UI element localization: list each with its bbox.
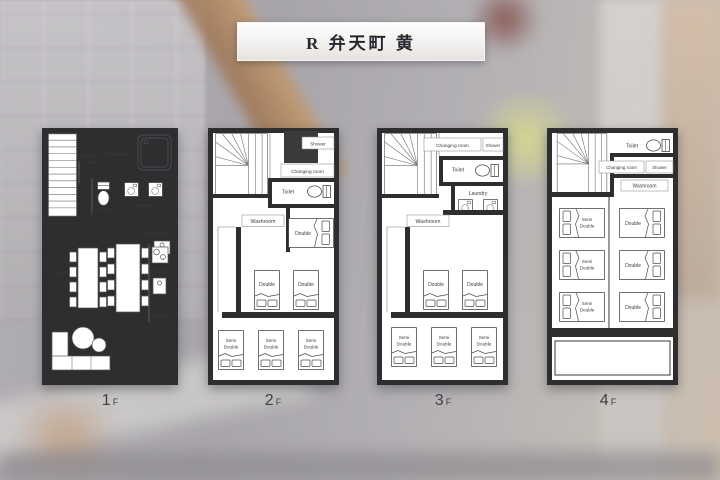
label-bed-double: Double xyxy=(467,282,483,288)
label-laundry: Laundry xyxy=(135,203,155,209)
floorplan-3f: Changing room Shower Toilet Laundry Wash… xyxy=(377,128,508,385)
svg-text:Double: Double xyxy=(437,342,452,347)
listing-photo: R 弁天町 黄 Changing room Bathroom Toilet xyxy=(0,0,720,480)
label-bed-semi: Semi xyxy=(226,338,236,343)
label-bed-semi: Semi xyxy=(582,259,592,264)
toilet-icon xyxy=(98,182,110,205)
floor-caption-4f: 4F xyxy=(578,392,638,410)
svg-text:Double: Double xyxy=(304,345,319,350)
floor-caption-1f: 1F xyxy=(80,392,140,410)
label-kitchen: Kitchen xyxy=(153,269,169,275)
svg-text:Double: Double xyxy=(224,345,239,350)
title-banner: R 弁天町 黄 xyxy=(237,22,485,61)
tv-icon xyxy=(47,254,51,292)
semi-double-bed-icon xyxy=(392,328,417,367)
label-shower: Shower xyxy=(652,165,667,170)
double-bed-icon xyxy=(294,271,319,310)
svg-text:room: room xyxy=(85,160,96,166)
round-table-icon xyxy=(92,338,106,352)
semi-double-bed-icon xyxy=(219,331,244,370)
page-title: R 弁天町 黄 xyxy=(306,29,416,54)
semi-double-bed-icon xyxy=(299,331,324,370)
floorplan-1f: Changing room Bathroom Toilet Laundry Wa… xyxy=(42,128,178,385)
round-table-icon xyxy=(72,327,94,349)
label-washroom: Washroom xyxy=(251,219,276,225)
label-toilet: Toilet xyxy=(452,168,465,174)
semi-double-bed-icon xyxy=(432,328,457,367)
label-bed-semi: Semi xyxy=(582,301,592,306)
semi-double-bed-icon xyxy=(259,331,284,370)
label-laundry: Laundry xyxy=(469,191,488,197)
label-changing-room: Changing room xyxy=(436,143,469,149)
floor-caption-3f: 3F xyxy=(413,392,473,410)
label-bed-semi: Semi xyxy=(479,335,489,340)
balcony-room xyxy=(555,341,670,375)
svg-text:Double: Double xyxy=(264,345,279,350)
label-washroom: Washroom xyxy=(633,184,657,190)
label-bed-semi: Semi xyxy=(439,335,449,340)
label-bed-semi: Semi xyxy=(399,335,409,340)
staircase-icon xyxy=(215,134,267,196)
floor-shadow xyxy=(0,452,720,480)
label-bed-semi: Semi xyxy=(266,338,276,343)
label-changing-room: Changing room xyxy=(606,165,637,170)
label-changing-room: Changing room xyxy=(291,169,324,175)
toilet-icon xyxy=(308,186,331,198)
svg-text:Double: Double xyxy=(477,342,492,347)
label-bathroom: Bathroom xyxy=(105,152,129,158)
washer-icon xyxy=(149,183,163,197)
label-shower: Shower xyxy=(310,141,326,146)
kitchen-sink-icon xyxy=(153,278,166,294)
toilet-icon xyxy=(476,165,499,177)
label-bed-double: Double xyxy=(625,221,641,227)
label-tv: TV xyxy=(55,272,62,278)
label-bed-double: Double xyxy=(295,231,311,237)
svg-text:Double: Double xyxy=(580,308,595,313)
label-washroom: Washroom xyxy=(141,231,168,237)
floorplan-2f: Shower Changing room Toilet Washroom Dou… xyxy=(208,128,339,385)
svg-text:Double: Double xyxy=(580,266,595,271)
label-bed-semi: Semi xyxy=(306,338,316,343)
label-toilet: Toilet xyxy=(98,207,110,213)
double-bed-icon xyxy=(255,271,280,310)
svg-text:Double: Double xyxy=(580,224,595,229)
label-bed-double: Double xyxy=(625,305,641,311)
label-bed-semi: Semi xyxy=(582,217,592,222)
label-bed-double: Double xyxy=(625,263,641,269)
washer-icon xyxy=(125,183,139,197)
label-washroom: Washroom xyxy=(416,219,441,225)
warm-bottom-left xyxy=(0,398,130,480)
double-bed-icon xyxy=(463,271,488,310)
floor-caption-2f: 2F xyxy=(243,392,303,410)
svg-text:Double: Double xyxy=(397,342,412,347)
label-toilet: Toilet xyxy=(282,190,295,196)
stove-icon xyxy=(152,247,168,263)
staircase-icon xyxy=(48,134,76,216)
double-bed-icon xyxy=(424,271,449,310)
floorplan-4f: Toilet Changing room Shower Washroom Sem… xyxy=(547,128,678,385)
semi-double-bed-icon xyxy=(472,328,497,367)
label-bed-double: Double xyxy=(259,282,275,288)
label-bed-double: Double xyxy=(298,282,314,288)
label-bed-double: Double xyxy=(428,282,444,288)
label-shower: Shower xyxy=(486,143,501,148)
label-toilet: Toilet xyxy=(626,144,639,150)
label-refrigerator: Refrigerator xyxy=(146,314,170,319)
toilet-icon xyxy=(647,140,670,152)
